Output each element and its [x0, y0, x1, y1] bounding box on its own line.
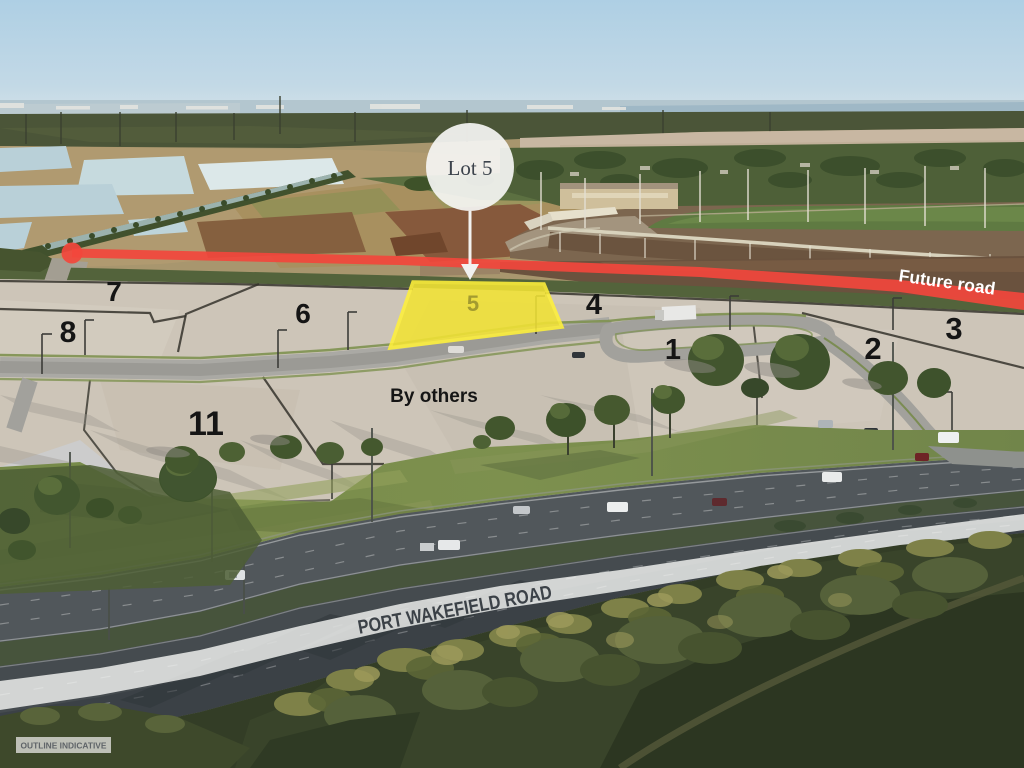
- svg-text:2: 2: [864, 331, 881, 366]
- svg-text:Lot 5: Lot 5: [448, 156, 493, 180]
- svg-text:3: 3: [945, 311, 962, 346]
- svg-text:8: 8: [60, 316, 77, 349]
- svg-text:6: 6: [295, 298, 311, 329]
- svg-text:7: 7: [106, 276, 122, 307]
- svg-text:OUTLINE INDICATIVE: OUTLINE INDICATIVE: [21, 741, 107, 751]
- svg-text:1: 1: [665, 334, 681, 366]
- svg-text:5: 5: [467, 291, 479, 316]
- svg-text:4: 4: [586, 289, 602, 321]
- svg-text:By others: By others: [390, 386, 478, 407]
- svg-text:11: 11: [188, 405, 224, 443]
